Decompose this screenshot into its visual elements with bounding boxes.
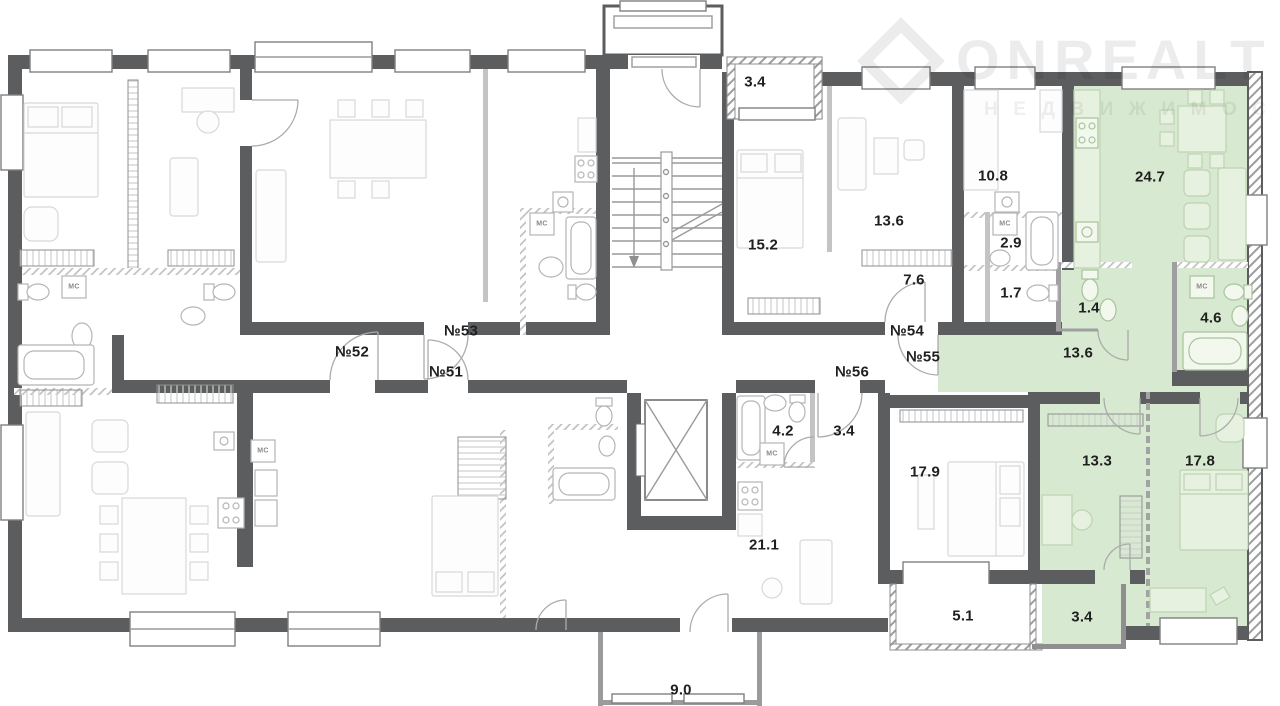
area-label-hall-7-6: 7.6 [903, 272, 924, 289]
area-label-room-17-8: 17.8 [1185, 453, 1215, 470]
area-label-bath-2-9: 2.9 [1000, 235, 1021, 252]
floor-plan: ONREALT НЕДВИЖИМОСТЬ №52 №53 №51 №54 №55… [0, 0, 1280, 706]
unit-label-52: №52 [335, 344, 369, 361]
area-label-terrace-9-0: 9.0 [670, 682, 691, 699]
area-label-hall-3-4: 3.4 [833, 423, 854, 440]
area-label-green-balcony: 3.4 [1071, 609, 1092, 626]
area-label-living-13-6: 13.6 [874, 213, 904, 230]
area-label-top-balcony: 3.4 [744, 74, 765, 91]
area-label-kitchen-10-8: 10.8 [978, 168, 1008, 185]
unit-label-54: №54 [890, 323, 924, 340]
unit-label-53: №53 [444, 323, 478, 340]
unit-label-55: №55 [906, 349, 940, 366]
area-label-bath-4-6: 4.6 [1200, 310, 1221, 327]
area-label-wc-1-7: 1.7 [1000, 285, 1021, 302]
mc-label: МС [999, 221, 1011, 228]
mc-label: МС [68, 284, 80, 291]
area-label-hall-13-6: 13.6 [1063, 345, 1093, 362]
unit-label-51: №51 [429, 364, 463, 381]
area-label-bedroom-17-9: 17.9 [910, 464, 940, 481]
mc-label: МС [536, 221, 548, 228]
mc-label: МС [1196, 284, 1208, 291]
unit-label-56: №56 [835, 364, 869, 381]
area-label-bedroom-15-2: 15.2 [748, 237, 778, 254]
area-label-room-13-3: 13.3 [1082, 453, 1112, 470]
area-label-balcony-5-1: 5.1 [952, 608, 973, 625]
mc-label: МС [766, 451, 778, 458]
area-label-wc-1-4: 1.4 [1078, 300, 1099, 317]
area-label-bath-4-2: 4.2 [772, 423, 793, 440]
area-label-living-24-7: 24.7 [1135, 169, 1165, 186]
mc-label: МС [257, 448, 269, 455]
area-label-living-21-1: 21.1 [749, 537, 779, 554]
